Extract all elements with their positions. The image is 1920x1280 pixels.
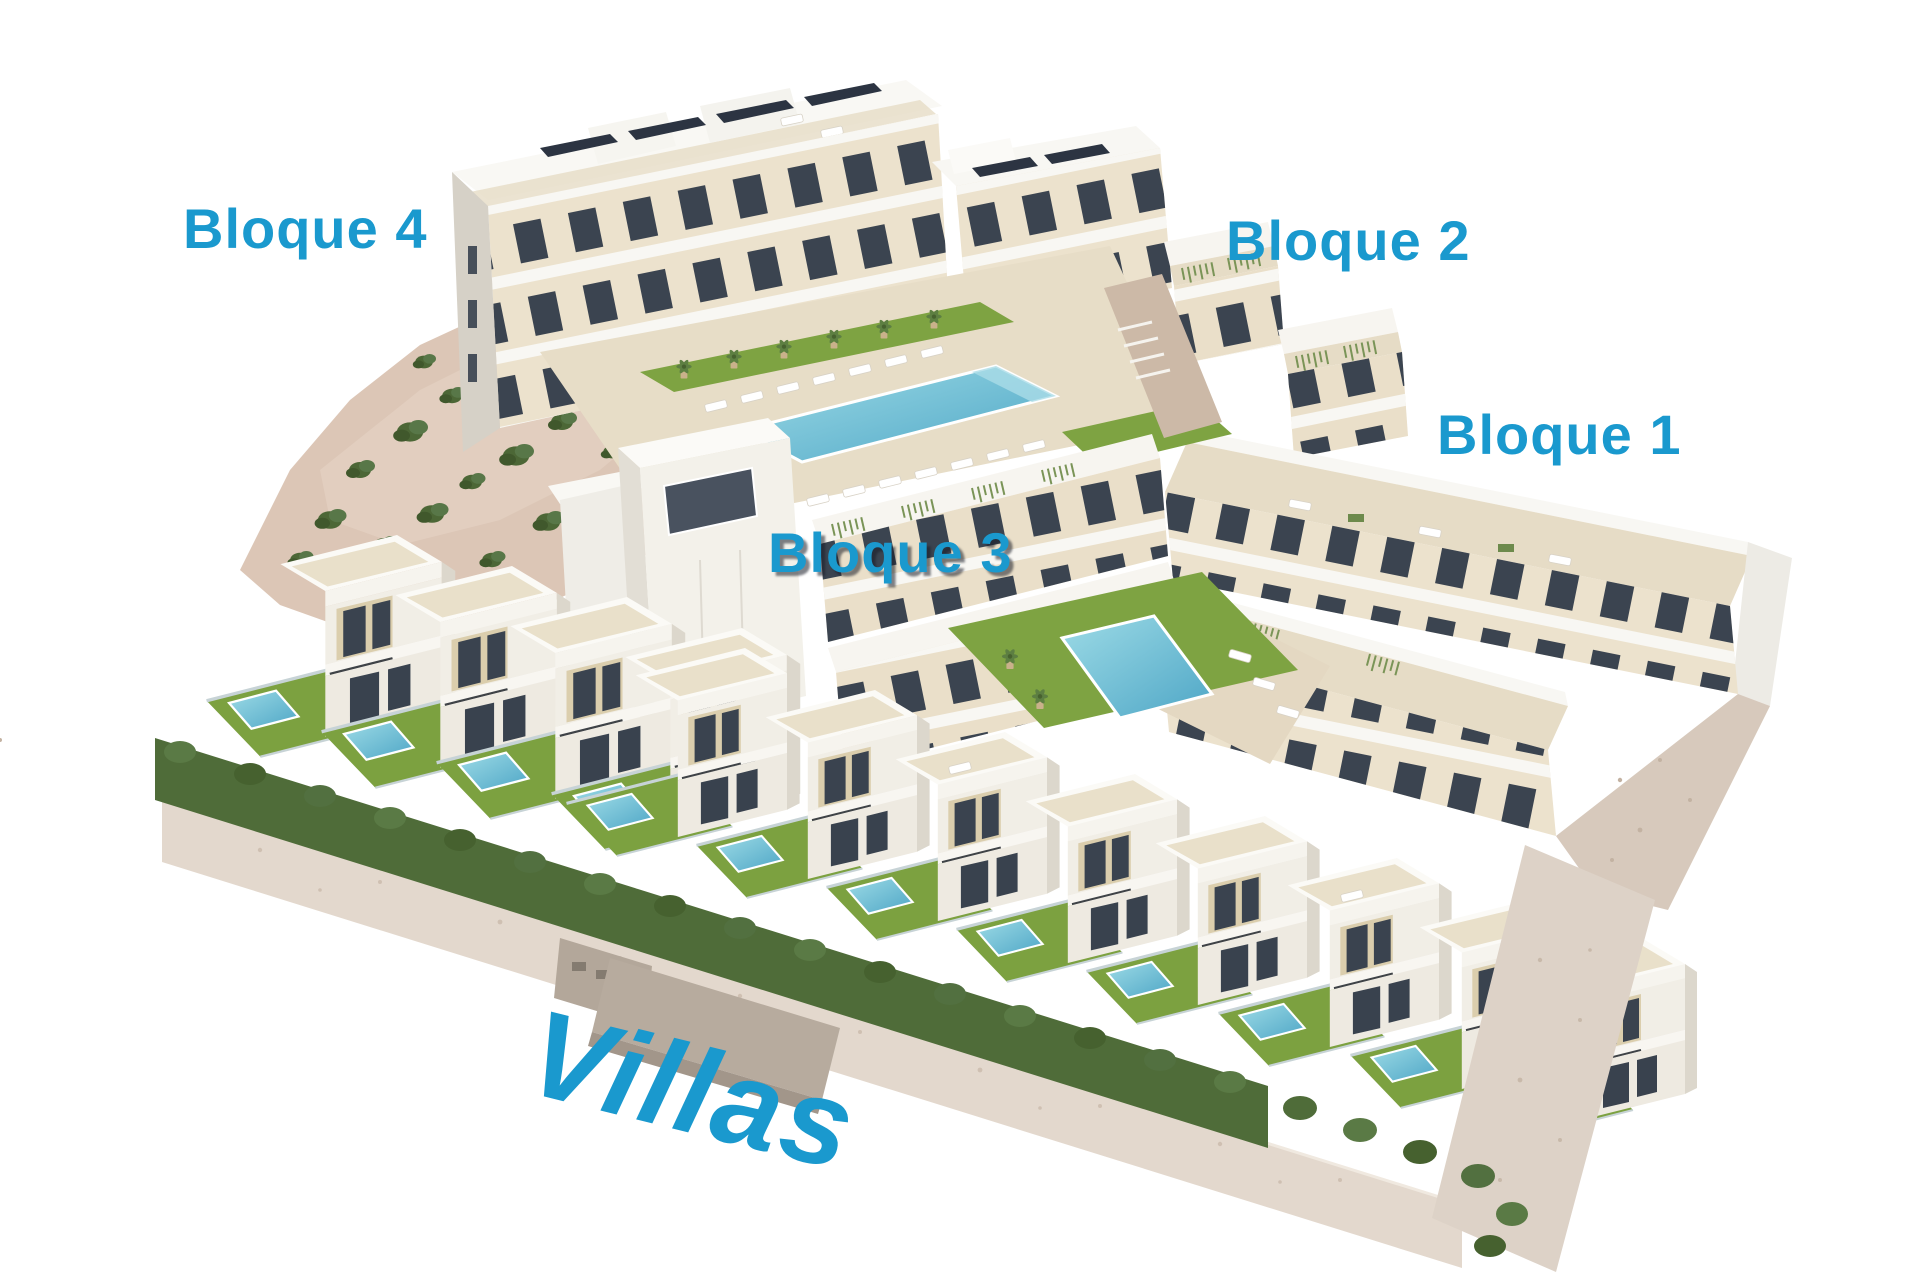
site-render-illustration — [0, 0, 1920, 1280]
label-bloque-2: Bloque 2 — [1226, 208, 1470, 273]
label-bloque-4: Bloque 4 — [183, 196, 427, 261]
label-bloque-1: Bloque 1 — [1437, 402, 1681, 467]
label-bloque-3: Bloque 3 — [768, 520, 1012, 585]
aerial-render-scene: Bloque 4 Bloque 2 Bloque 1 Bloque 3 Vill… — [0, 0, 1920, 1280]
